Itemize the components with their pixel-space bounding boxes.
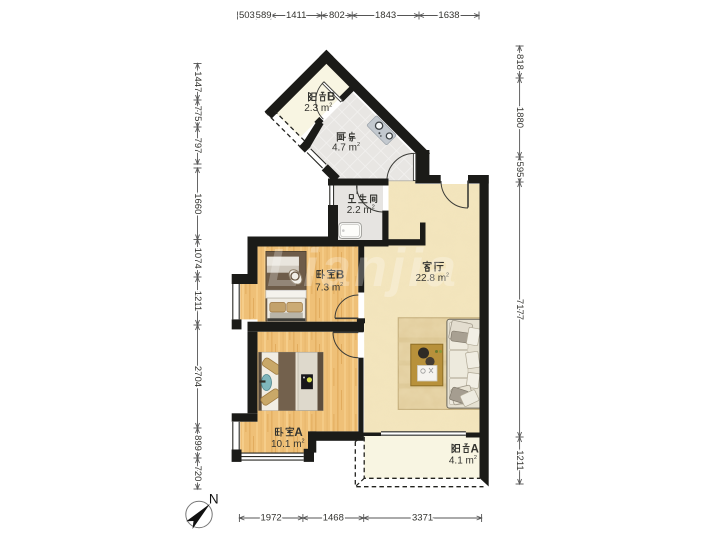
- svg-text:4.1 m2: 4.1 m2: [449, 455, 477, 467]
- svg-text:A: A: [294, 426, 303, 439]
- svg-text:1411: 1411: [286, 10, 306, 21]
- svg-text:3371: 3371: [412, 513, 433, 524]
- svg-text:1660: 1660: [192, 193, 203, 214]
- svg-text:1880: 1880: [514, 107, 525, 128]
- svg-text:1074: 1074: [192, 248, 203, 269]
- svg-text:4.7 m2: 4.7 m2: [332, 142, 360, 154]
- svg-text:10.1 m2: 10.1 m2: [271, 439, 305, 451]
- svg-text:802: 802: [329, 10, 345, 21]
- svg-text:720: 720: [192, 466, 203, 482]
- svg-text:589: 589: [256, 10, 272, 21]
- svg-text:1843: 1843: [375, 10, 396, 21]
- svg-text:A: A: [471, 442, 480, 455]
- svg-text:1211: 1211: [514, 450, 525, 470]
- svg-text:503: 503: [239, 10, 255, 21]
- svg-text:775: 775: [192, 106, 203, 122]
- svg-text:1211: 1211: [192, 291, 203, 311]
- svg-text:1638: 1638: [438, 10, 459, 21]
- svg-text:797: 797: [192, 138, 203, 154]
- svg-text:595: 595: [514, 162, 525, 178]
- svg-text:1468: 1468: [323, 513, 344, 524]
- svg-text:899: 899: [192, 435, 203, 451]
- svg-text:818: 818: [514, 54, 525, 70]
- svg-text:2704: 2704: [192, 366, 203, 387]
- svg-text:N: N: [209, 492, 219, 507]
- svg-text:1447: 1447: [192, 71, 203, 92]
- svg-text:1972: 1972: [261, 513, 282, 524]
- svg-text:7177: 7177: [514, 299, 525, 320]
- svg-text:2.3 m2: 2.3 m2: [304, 103, 332, 115]
- svg-text:2.2 m2: 2.2 m2: [347, 205, 375, 217]
- svg-text:Lianjia: Lianjia: [267, 238, 459, 298]
